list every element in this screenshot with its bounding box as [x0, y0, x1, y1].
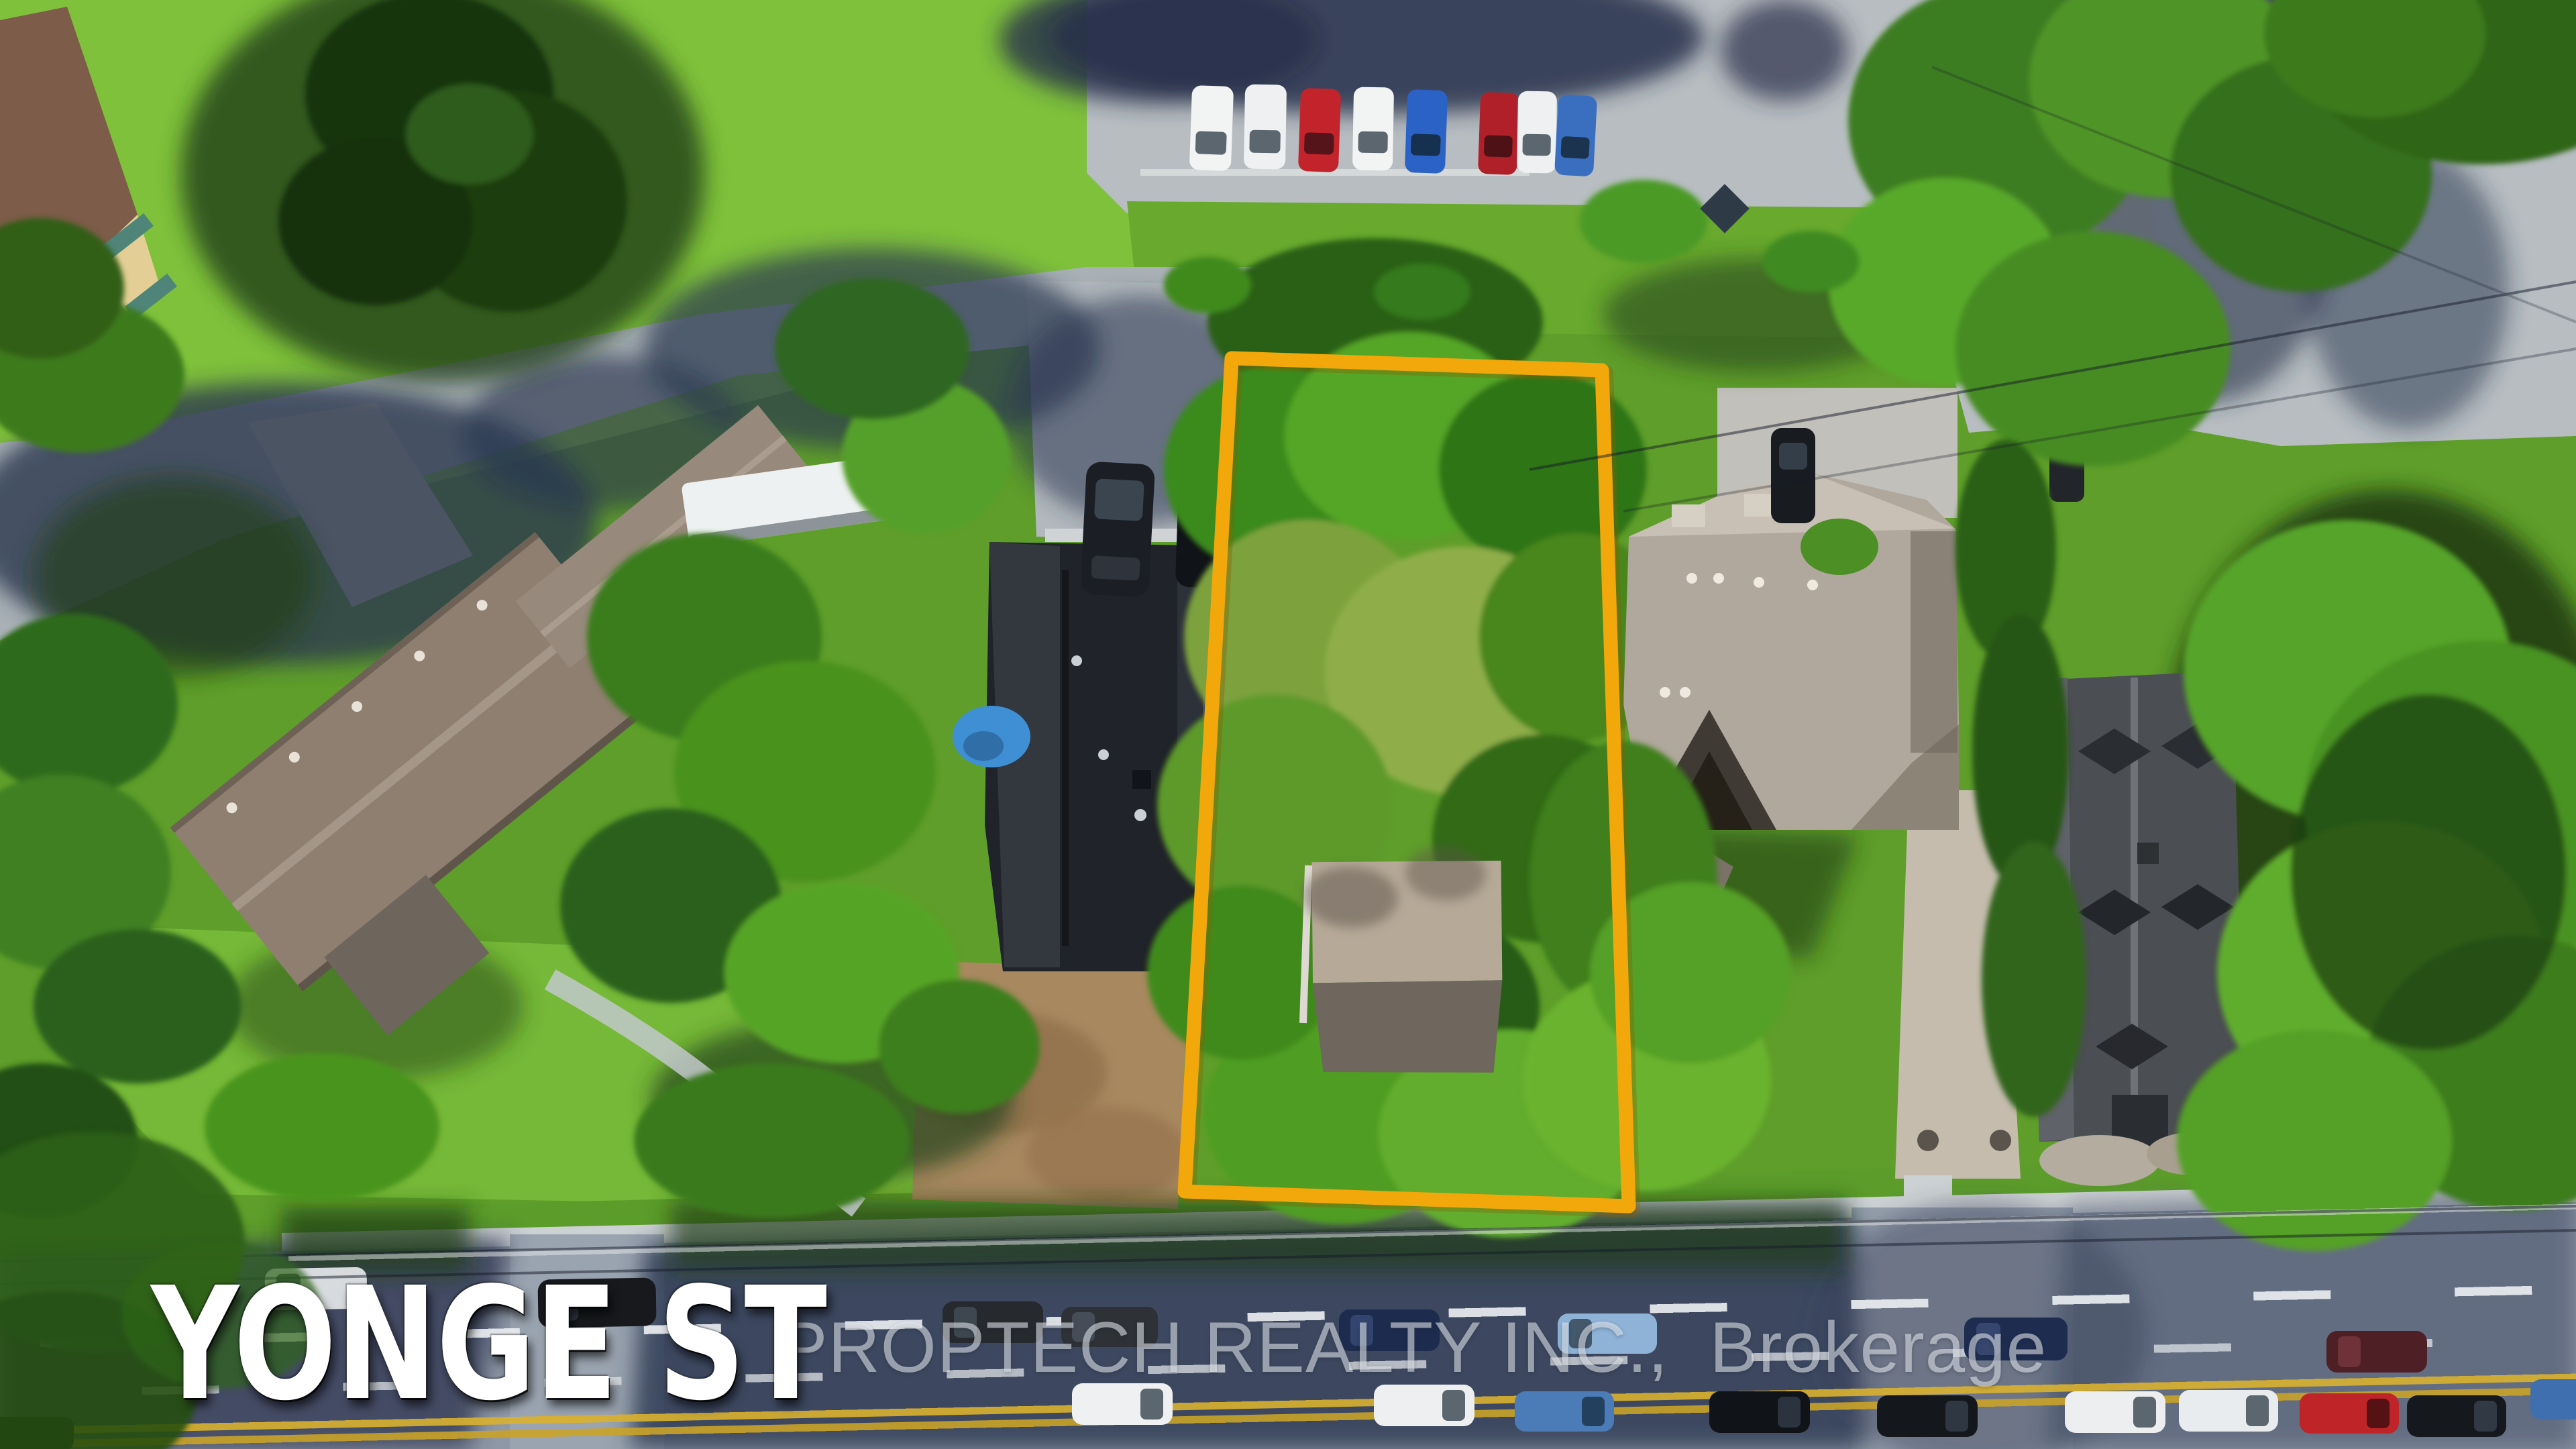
- car: [2326, 1331, 2427, 1373]
- car: [2530, 1379, 2576, 1419]
- car: [2407, 1395, 2506, 1437]
- car: [2300, 1393, 2399, 1434]
- car: [1515, 1391, 1614, 1432]
- car: [1709, 1391, 1810, 1433]
- street-name-label: YONGE ST: [151, 1267, 826, 1422]
- car: [1374, 1385, 1474, 1426]
- car: [1877, 1395, 1978, 1437]
- car: [2065, 1391, 2165, 1433]
- car: [1072, 1383, 1173, 1425]
- brokerage-watermark: PROPTECH REALTY INC., Brokerage: [780, 1308, 2047, 1387]
- car: [2179, 1390, 2278, 1432]
- aerial-photo: YONGE ST PROPTECH REALTY INC., Brokerage: [0, 0, 2576, 1449]
- aerial-scene: [0, 0, 2576, 1449]
- lot-cottage: [1297, 842, 1507, 1078]
